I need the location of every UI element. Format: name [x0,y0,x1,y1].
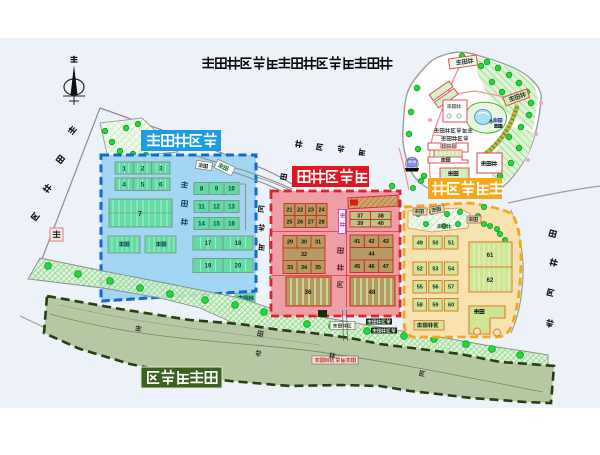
svg-text:54: 54 [448,267,455,273]
svg-text:47: 47 [383,264,389,270]
svg-text:33: 33 [287,265,293,271]
svg-text:2: 2 [141,165,145,172]
svg-text:37: 37 [357,214,363,220]
svg-text:7: 7 [138,211,142,218]
svg-text:46: 46 [368,264,374,270]
svg-text:62: 62 [487,278,494,284]
svg-text:10: 10 [228,187,235,193]
svg-text:16: 16 [228,222,235,228]
svg-text:58: 58 [417,303,423,309]
svg-text:53: 53 [432,267,438,273]
svg-text:49: 49 [417,241,423,247]
svg-text:36: 36 [305,290,312,296]
svg-text:50: 50 [432,241,438,247]
svg-text:13: 13 [228,205,235,211]
svg-text:20: 20 [235,264,242,270]
svg-text:55: 55 [417,285,423,291]
svg-text:1: 1 [122,165,126,172]
svg-text:56: 56 [432,285,438,291]
svg-text:43: 43 [383,239,389,245]
svg-text:23: 23 [308,208,314,214]
svg-text:25: 25 [286,220,292,226]
svg-text:22: 22 [297,208,303,214]
svg-text:38: 38 [378,214,384,220]
svg-text:24: 24 [319,208,326,214]
svg-text:35: 35 [315,265,321,271]
svg-text:3: 3 [159,165,163,172]
svg-text:59: 59 [432,303,438,309]
svg-text:26: 26 [297,220,303,226]
svg-text:41: 41 [354,239,360,245]
svg-text:18: 18 [235,241,242,247]
svg-text:52: 52 [417,267,423,273]
svg-text:57: 57 [448,285,454,291]
svg-text:61: 61 [487,253,494,259]
svg-text:34: 34 [301,265,308,271]
svg-text:28: 28 [319,220,325,226]
svg-text:29: 29 [287,240,293,246]
svg-text:42: 42 [368,239,374,245]
svg-text:39: 39 [357,221,363,227]
svg-text:5: 5 [141,182,145,189]
svg-text:44: 44 [368,252,375,258]
svg-text:11: 11 [198,205,205,211]
svg-text:51: 51 [448,241,454,247]
svg-text:45: 45 [354,264,360,270]
svg-text:17: 17 [205,241,212,247]
svg-text:19: 19 [205,264,212,270]
svg-text:48: 48 [369,290,376,296]
svg-text:27: 27 [308,220,314,226]
svg-text:40: 40 [378,221,384,227]
svg-text:4: 4 [122,182,126,189]
svg-text:31: 31 [315,240,321,246]
svg-text:60: 60 [448,303,454,309]
svg-text:12: 12 [213,205,220,211]
svg-text:30: 30 [301,240,307,246]
svg-text:6: 6 [159,182,163,189]
svg-text:32: 32 [301,252,307,258]
svg-text:15: 15 [213,222,220,228]
svg-text:21: 21 [286,208,292,214]
svg-text:14: 14 [198,222,205,228]
